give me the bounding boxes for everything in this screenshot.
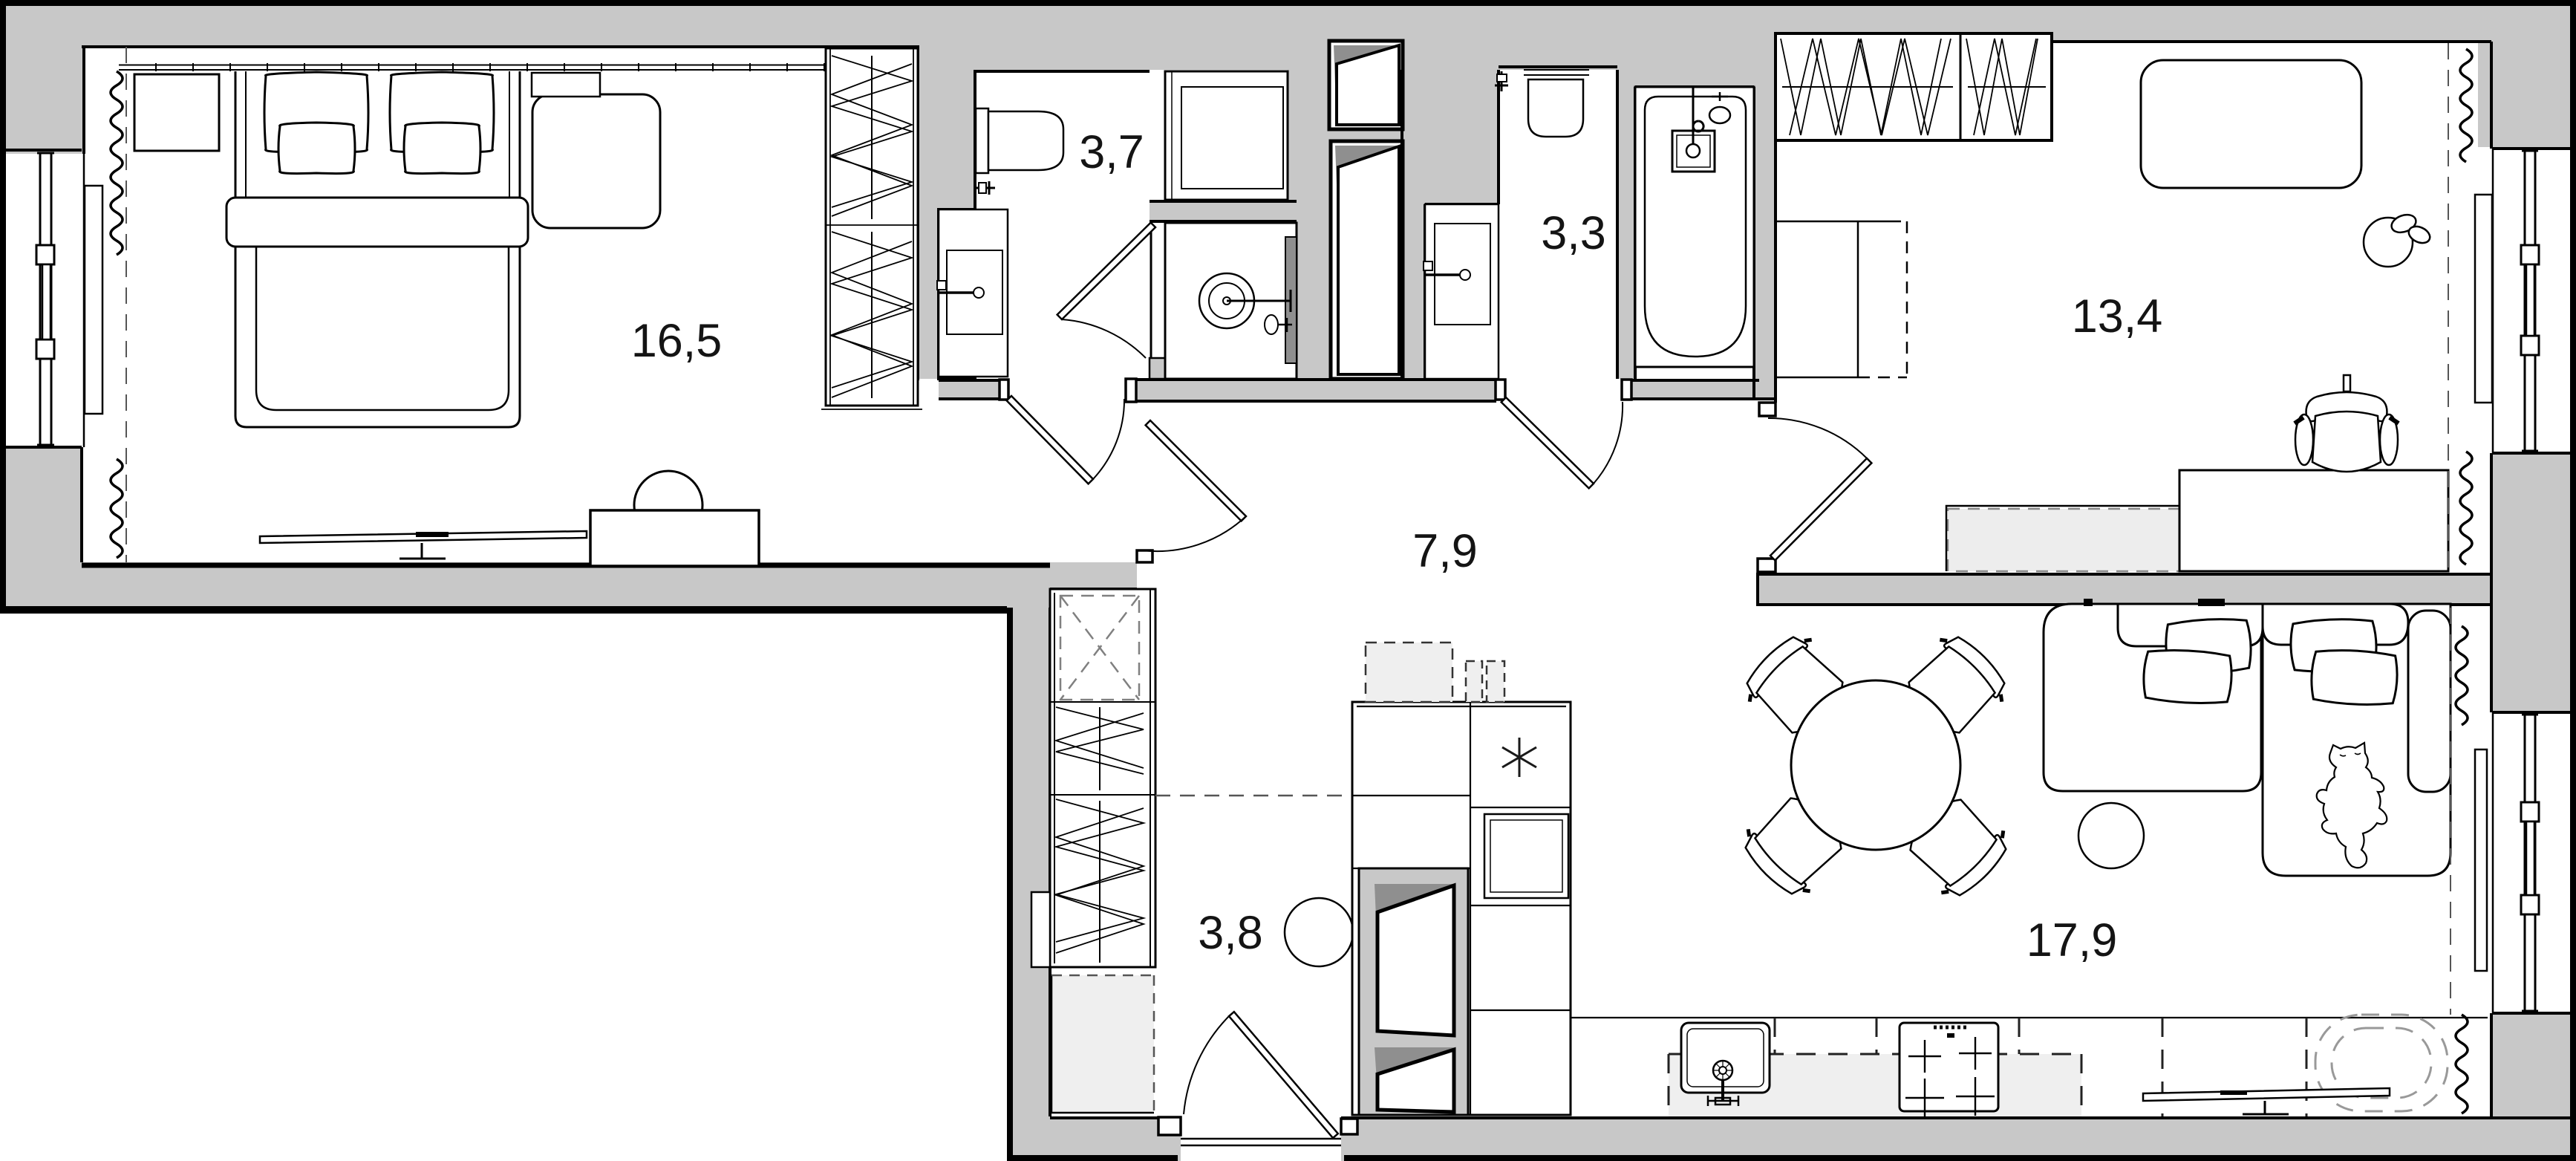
svg-text:17,9: 17,9: [2026, 914, 2118, 966]
svg-text:3,7: 3,7: [1079, 126, 1144, 178]
svg-text:3,3: 3,3: [1541, 207, 1606, 259]
svg-text:3,8: 3,8: [1198, 907, 1263, 959]
svg-text:13,4: 13,4: [2072, 290, 2163, 342]
svg-text:7,9: 7,9: [1412, 525, 1478, 577]
svg-text:16,5: 16,5: [631, 315, 723, 367]
